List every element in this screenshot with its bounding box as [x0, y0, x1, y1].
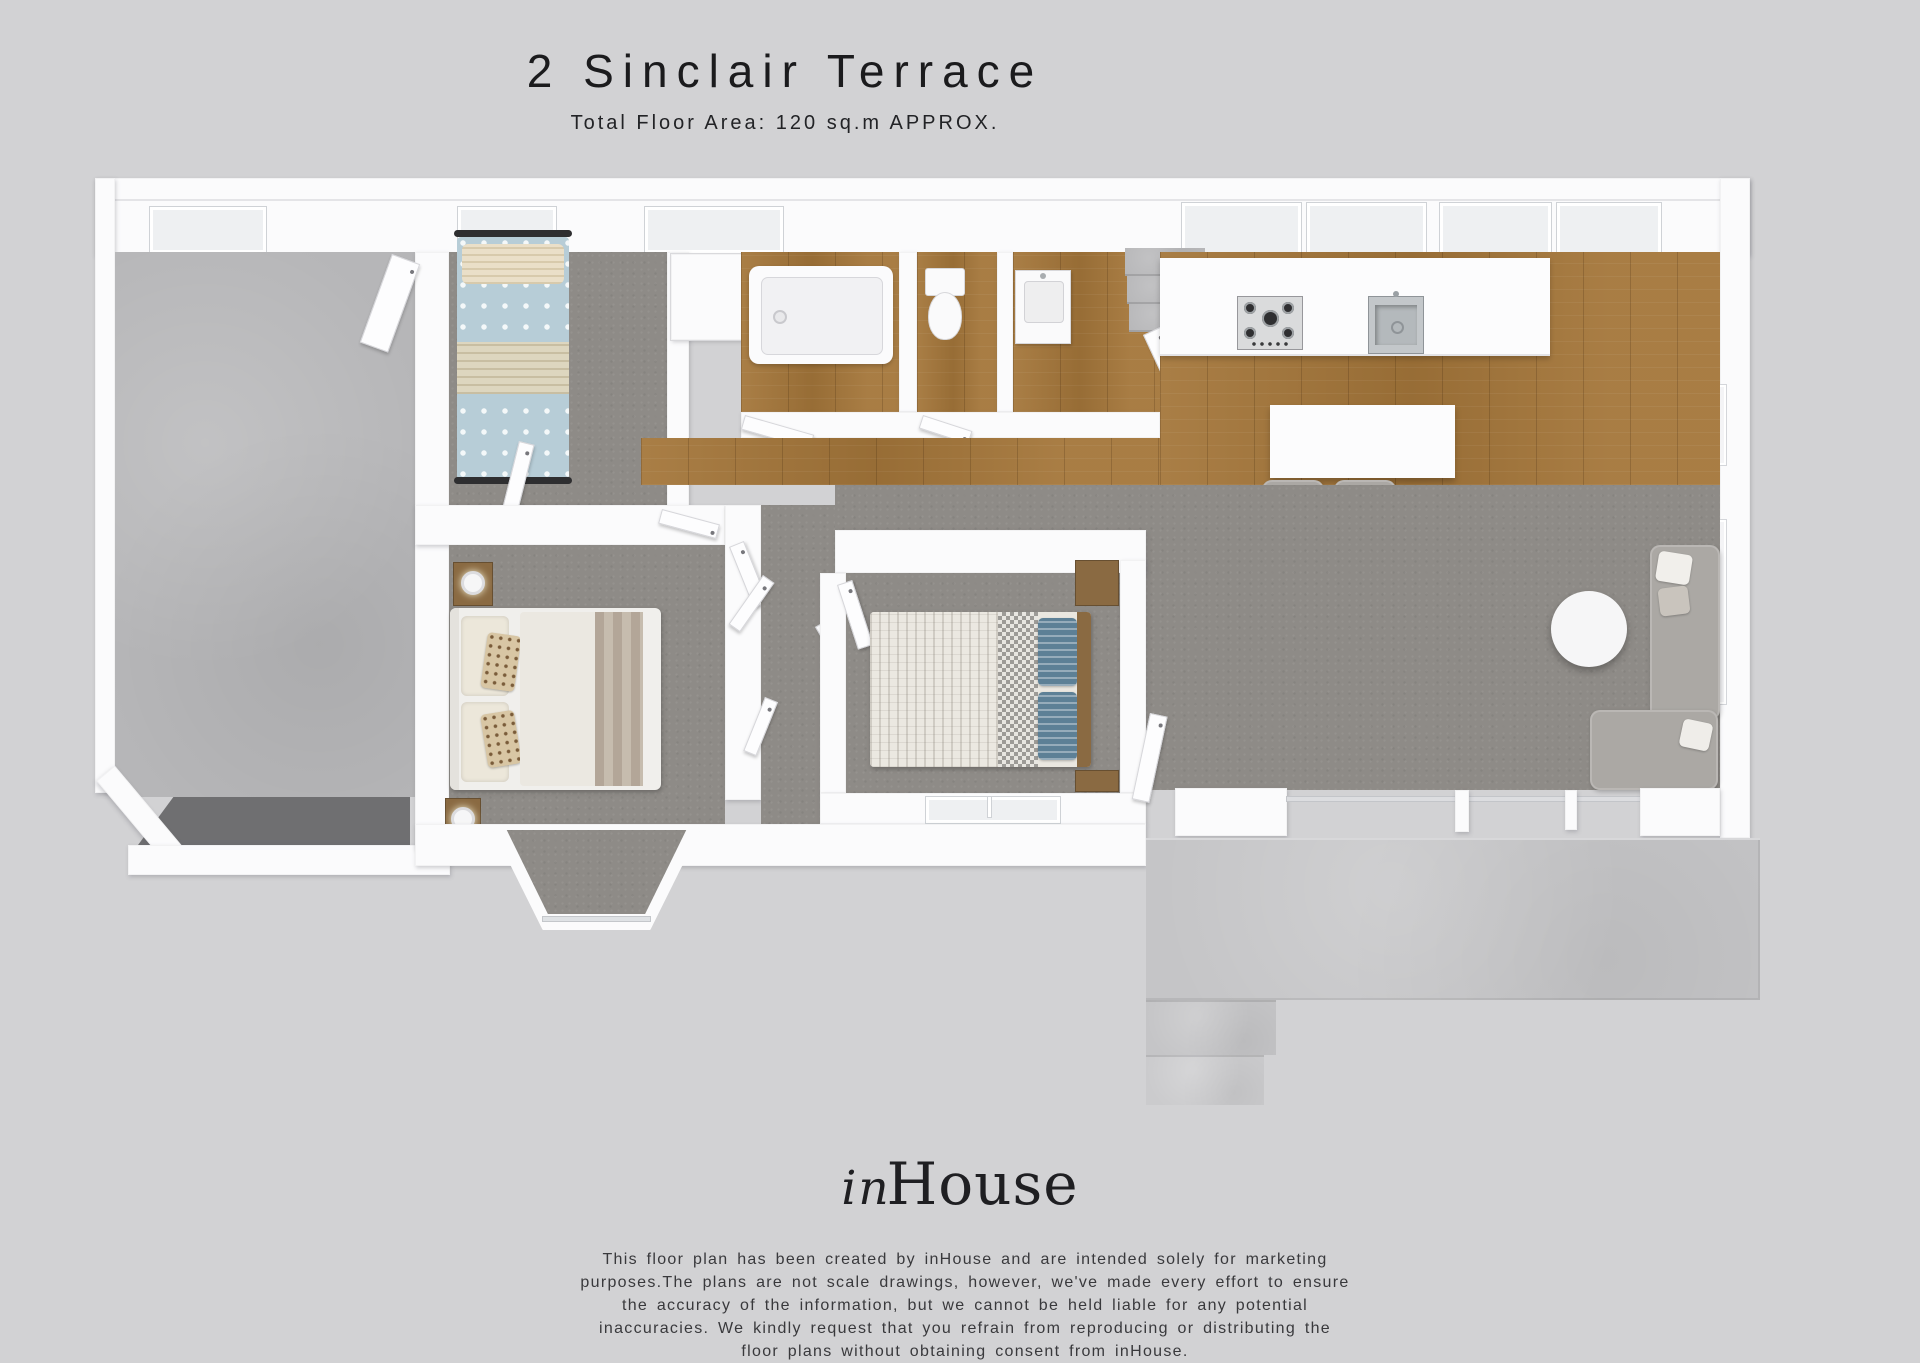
inhouse-logo: inHouse [841, 1150, 1078, 1218]
single-bed-pillow [462, 244, 564, 284]
nightstand [1075, 770, 1119, 792]
bed3-pillow-blue [1038, 618, 1077, 686]
wall-garage-bottom [128, 845, 450, 875]
bedside-lamp [461, 571, 485, 595]
bed3-pillow-blue [1038, 692, 1077, 760]
laundry-basin [1024, 281, 1064, 323]
wall-bath-wc [899, 252, 917, 412]
kitchen-island [1270, 405, 1455, 478]
sliding-post [1455, 790, 1469, 832]
bathtub [749, 266, 893, 364]
window-kitchen-2 [1307, 203, 1426, 255]
patio [1146, 838, 1760, 1000]
bay-window-glass [543, 917, 650, 921]
master-bed [450, 608, 661, 790]
corridor-floor [641, 438, 1160, 485]
wall-right [1720, 178, 1750, 838]
burner [1244, 302, 1256, 314]
sliding-panel [1640, 788, 1720, 836]
wall-bedroom3-left [820, 573, 846, 793]
roofline [95, 199, 1750, 201]
bed3-duvet [870, 612, 998, 767]
leopard-pillow [480, 632, 521, 692]
bed3-headboard [1077, 612, 1091, 767]
patio-step [1146, 1000, 1276, 1055]
disclaimer-line: inaccuracies. We kindly request that you… [580, 1317, 1349, 1340]
cooktop [1237, 296, 1303, 350]
disclaimer: This floor plan has been created by inHo… [580, 1248, 1349, 1363]
disclaimer-line: floor plans without obtaining consent fr… [580, 1340, 1349, 1363]
laundry-faucet [1040, 273, 1046, 279]
kitchen-counter [1160, 258, 1550, 356]
disclaimer-line: purposes.The plans are not scale drawing… [580, 1271, 1349, 1294]
leopard-pillow [480, 710, 522, 769]
burner [1282, 302, 1294, 314]
logo-script-text: in [841, 1161, 890, 1216]
disclaimer-line: This floor plan has been created by inHo… [580, 1248, 1349, 1271]
window-garage [150, 207, 266, 253]
single-bed-throw [457, 342, 569, 394]
window-living-1 [1440, 203, 1551, 255]
window-bedroom3 [926, 797, 1060, 823]
floor-plan [95, 175, 1765, 1115]
bedroom3-bed [870, 612, 1091, 767]
single-bed [454, 230, 572, 484]
burner [1244, 327, 1256, 339]
single-bed-headboard [454, 230, 572, 237]
window-living-2 [1557, 203, 1661, 255]
patio-step [1146, 1055, 1264, 1105]
cooktop-knobs [1250, 342, 1290, 346]
wall-wc-laundry [997, 252, 1013, 412]
sofa-pillow [1678, 718, 1713, 752]
master-bed-headboard [450, 608, 459, 790]
bed3-houndstooth-runner [998, 612, 1038, 767]
burner [1282, 327, 1294, 339]
toilet-bowl [928, 292, 962, 340]
burner [1262, 310, 1279, 327]
wall-left [95, 178, 115, 793]
nightstand [1075, 560, 1119, 606]
laundry-vanity [1015, 270, 1071, 344]
wardrobe-bedroom2 [671, 254, 743, 340]
sliding-panel [1175, 788, 1287, 836]
bathtub-drain [773, 310, 787, 324]
master-bed-runner [595, 612, 643, 786]
toilet [925, 268, 963, 340]
sofa-pillow [1657, 585, 1690, 616]
garage-door-strip [138, 797, 410, 845]
window-bedroom3-mullion [988, 797, 991, 817]
logo-serif-text: House [887, 1150, 1079, 1218]
sink-drain [1391, 321, 1404, 334]
page-title: 2 Sinclair Terrace [527, 44, 1044, 98]
window-bathroom [645, 207, 783, 253]
coffee-table [1551, 591, 1627, 667]
wall-garage-right [415, 252, 449, 849]
disclaimer-line: the accuracy of the information, but we … [580, 1294, 1349, 1317]
kitchen-sink [1368, 296, 1424, 354]
sofa-pillow [1655, 551, 1693, 586]
sink-faucet [1393, 291, 1399, 297]
sliding-post [1565, 790, 1577, 830]
floor-area-subtitle: Total Floor Area: 120 sq.m APPROX. [571, 112, 1000, 135]
